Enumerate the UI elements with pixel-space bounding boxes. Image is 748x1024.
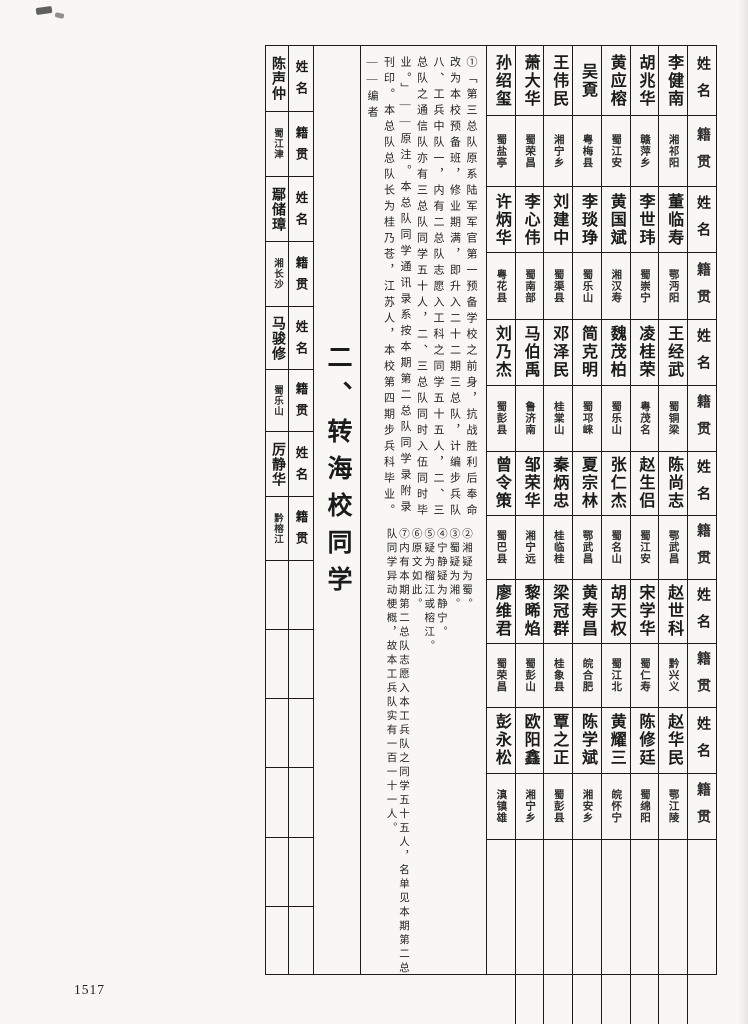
- roster-cell: 欧阳骏粤顺德: [543, 840, 572, 1024]
- roster-cell: 王经武蜀铜梁: [658, 320, 687, 451]
- roster-cell: 李琰琤蜀乐山: [572, 187, 601, 319]
- student-name: 黎晞焰: [516, 580, 544, 644]
- student-name: 黎品鑫: [631, 840, 659, 1024]
- roster-cell: 李健南湘祁阳: [658, 46, 687, 186]
- student-name: 陈声仲: [267, 56, 287, 101]
- student-name: 廖维君: [487, 580, 515, 644]
- student-name: 邹荣华: [516, 452, 544, 516]
- roster-cell: 曾令策蜀巴县: [487, 452, 515, 579]
- native-place: 蜀江安: [602, 116, 630, 186]
- scan-artifact: [55, 12, 65, 19]
- name-header-label: 姓名: [292, 440, 311, 489]
- student-name: 袁纯一: [573, 840, 601, 1024]
- student-name: 王伟民: [544, 46, 572, 116]
- student-name: 李心伟: [516, 187, 544, 253]
- empty-cell: [266, 906, 288, 974]
- origin-header-cell: 籍贯: [289, 241, 313, 306]
- empty-cell: [289, 837, 313, 906]
- scan-artifact: [36, 6, 53, 15]
- student-name: 唐昌诚: [516, 840, 544, 1024]
- native-place: 桂临桂: [544, 516, 572, 580]
- student-name: 许炳华: [487, 187, 515, 253]
- native-place: 皖怀宁: [602, 774, 630, 840]
- student-name: 张仁杰: [602, 452, 630, 516]
- native-place: 皖合肥: [573, 644, 601, 708]
- roster-cell: 陈学斌湘安乡: [572, 708, 601, 839]
- origin-header-label: 籍贯: [292, 250, 311, 299]
- roster-cell: 欧阳鑫湘宁乡: [515, 708, 544, 839]
- roster-cell: 李心伟蜀南部: [515, 187, 544, 319]
- student-name: 宋学华: [631, 580, 659, 644]
- student-name: 梁冠群: [544, 580, 572, 644]
- name-header-cell: 姓名: [289, 306, 313, 369]
- native-place-cell: 湘长沙: [266, 241, 288, 306]
- roster-cell: 刘乃杰蜀彭县: [487, 320, 515, 451]
- student-name: 陈修廷: [631, 708, 659, 774]
- name-header-cell: 姓名: [289, 46, 313, 111]
- name-header-label: 姓名: [292, 54, 311, 103]
- note-list: ②湘疑为蜀。 ③蜀疑为湘。 ④宁静疑为静宁。 ⑤疑为榴江或榕江。 ⑥原文如此。 …: [384, 528, 472, 976]
- student-name: 邓泽民: [544, 320, 572, 386]
- student-name: 王经武: [659, 320, 687, 386]
- roster-cell: 黄寿昌皖合肥: [572, 580, 601, 707]
- native-place: 蜀江北: [602, 644, 630, 708]
- student-name: 厉静华: [267, 442, 287, 487]
- roster-cell: 李世玮蜀崇宁: [630, 187, 659, 319]
- student-name: 陈学斌: [573, 708, 601, 774]
- student-name: 夏宗林: [573, 452, 601, 516]
- row-header-cell: 姓名籍贯: [687, 320, 716, 451]
- row-header-cell: 姓名籍贯: [687, 840, 716, 1024]
- native-place: 蜀江安: [631, 516, 659, 580]
- roster-cell: 黄耀三皖怀宁: [601, 708, 630, 839]
- name-header-cell: 姓名: [289, 176, 313, 241]
- native-place: 鄂江陵: [659, 774, 687, 840]
- native-place: 蜀彭县: [544, 774, 572, 840]
- student-name-cell: 马骏修: [266, 306, 288, 369]
- roster-cell: 马伯禹鲁济南: [515, 320, 544, 451]
- native-place: 蜀崇宁: [631, 253, 659, 319]
- student-name: 秦炳忠: [544, 452, 572, 516]
- roster-cell: 覃之正蜀彭县: [543, 708, 572, 839]
- origin-header-cell: 籍贯: [289, 111, 313, 176]
- native-place: 鄂武昌: [659, 516, 687, 580]
- student-name: 陈尚志: [659, 452, 687, 516]
- empty-cell: [289, 767, 313, 837]
- student-name: 马骏修: [267, 316, 287, 361]
- student-name: 赵华民: [659, 708, 687, 774]
- roster-cell: 董临寿鄂沔阳: [658, 187, 687, 319]
- origin-header-label: 籍贯: [292, 504, 311, 553]
- student-name: 魏茂柏: [602, 320, 630, 386]
- roster-cell: 胡兆华赣萍乡: [630, 46, 659, 186]
- student-name: 韩卧云: [602, 840, 630, 1024]
- table-row: 许炳华粤花县 李心伟蜀南部 刘建中蜀渠县 李琰琤蜀乐山 黄国斌湘汉寿 李世玮蜀崇…: [487, 186, 716, 319]
- name-header-cell: 姓名: [289, 431, 313, 496]
- student-name: 彭永松: [487, 708, 515, 774]
- roster-cell: 赵华民鄂江陵: [658, 708, 687, 839]
- table-row: 彭永松滇镇雄 欧阳鑫湘宁乡 覃之正蜀彭县 陈学斌湘安乡 黄耀三皖怀宁 陈修廷蜀绵…: [487, 707, 716, 839]
- native-place: 蜀铜梁: [659, 386, 687, 452]
- student-name: 凌桂荣: [631, 320, 659, 386]
- roster-cell: 陈尚志鄂武昌: [658, 452, 687, 579]
- empty-cell: [266, 837, 288, 906]
- roster-cell: 梁冠群桂象县: [543, 580, 572, 707]
- native-place: 蜀彭山: [516, 644, 544, 708]
- native-place: 湘宁乡: [516, 774, 544, 840]
- table-row: 唐昌诚蜀安岳 欧阳骏粤顺德 袁纯一鄂公安 韩卧云蜀宜宾 黎品鑫康天全 侯哲冀宝坻…: [487, 839, 716, 1024]
- native-place: 蜀邛崃: [573, 386, 601, 452]
- page-edge-shadow: [738, 0, 748, 1024]
- empty-cell: [266, 698, 288, 767]
- roster-cell: 黄国斌湘汉寿: [601, 187, 630, 319]
- native-place-cell: 蜀乐山: [266, 369, 288, 431]
- native-place-cell: 蜀江津: [266, 111, 288, 176]
- name-header-label: 姓名: [688, 46, 716, 116]
- roster-cell: 赵世科黔兴义: [658, 580, 687, 707]
- roster-cell: 胡天权蜀江北: [601, 580, 630, 707]
- student-name: 黄应榕: [602, 46, 630, 116]
- roster-table: 陈声仲 蜀江津 鄢储璋 湘长沙 马骏修 蜀乐山 厉静华 黔榕江 姓名 籍贯 姓名…: [265, 45, 717, 975]
- native-place: 黔兴义: [659, 644, 687, 708]
- empty-roster-cell: [487, 840, 515, 1024]
- roster-cell: 廖维君蜀荣昌: [487, 580, 515, 707]
- name-header-label: 姓名: [688, 187, 716, 253]
- origin-header-label: 籍贯: [292, 120, 311, 169]
- row-header-cell: 姓名籍贯: [687, 46, 716, 186]
- empty-cell: [289, 698, 313, 767]
- origin-header-label: 籍贯: [688, 644, 716, 708]
- student-name: 欧阳骏: [544, 840, 572, 1024]
- roster-cell: 黄应榕蜀江安: [601, 46, 630, 186]
- roster-cell: 刘建中蜀渠县: [543, 187, 572, 319]
- row-header-cell: 姓名籍贯: [687, 580, 716, 707]
- row-header-cell: 姓名籍贯: [687, 187, 716, 319]
- native-place: 蜀乐山: [270, 385, 284, 417]
- native-place: 蜀巴县: [487, 516, 515, 580]
- row-header-cell: 姓名籍贯: [687, 708, 716, 839]
- origin-header-label: 籍贯: [688, 386, 716, 452]
- student-name: 刘建中: [544, 187, 572, 253]
- empty-cell: [289, 906, 313, 974]
- student-name: 李琰琤: [573, 187, 601, 253]
- roster-cell: 袁纯一鄂公安: [572, 840, 601, 1024]
- roster-cell: 秦炳忠桂临桂: [543, 452, 572, 579]
- table-row: 刘乃杰蜀彭县 马伯禹鲁济南 邓泽民桂棠山 简克明蜀邛崃 魏茂柏蜀乐山 凌桂荣粤茂…: [487, 319, 716, 451]
- student-name: 马伯禹: [516, 320, 544, 386]
- name-header-label: 姓名: [292, 314, 311, 363]
- left-headers-column: 姓名 籍贯 姓名 籍贯 姓名 籍贯 姓名 籍贯: [289, 46, 314, 974]
- origin-header-label: 籍贯: [292, 376, 311, 425]
- row-header-cell: 姓名籍贯: [687, 452, 716, 579]
- student-name: 萧大华: [516, 46, 544, 116]
- native-place: 蜀乐山: [573, 253, 601, 319]
- student-name: 黄国斌: [602, 187, 630, 253]
- name-header-label: 姓名: [688, 320, 716, 386]
- origin-header-cell: 籍贯: [289, 369, 313, 431]
- native-place: 湘祁阳: [659, 116, 687, 186]
- roster-cell: 唐昌诚蜀安岳: [515, 840, 544, 1024]
- origin-header-cell: 籍贯: [289, 496, 313, 560]
- origin-header-label: 籍贯: [688, 774, 716, 840]
- roster-cell: 侯哲冀宝坻: [658, 840, 687, 1024]
- student-name: 欧阳鑫: [516, 708, 544, 774]
- roster-cell: 萧大华蜀荣昌: [515, 46, 544, 186]
- native-place: 蜀名山: [602, 516, 630, 580]
- native-place: 粤花县: [487, 253, 515, 319]
- native-place: 粤茂名: [631, 386, 659, 452]
- student-name: 吴覔: [573, 46, 601, 116]
- roster-cell: 夏宗林鄂武昌: [572, 452, 601, 579]
- student-name: 胡天权: [602, 580, 630, 644]
- student-name: 李健南: [659, 46, 687, 116]
- page-number: 1517: [74, 982, 105, 998]
- name-header-label: 姓名: [688, 452, 716, 516]
- roster-cell: 张仁杰蜀名山: [601, 452, 630, 579]
- empty-cell: [266, 560, 288, 629]
- roster-cell: 彭永松滇镇雄: [487, 708, 515, 839]
- roster-cell: 黎品鑫康天全: [630, 840, 659, 1024]
- section-title-column: 二、转海校同学: [314, 46, 361, 974]
- native-place: 鄂沔阳: [659, 253, 687, 319]
- roster-cell: 魏茂柏蜀乐山: [601, 320, 630, 451]
- native-place: 湘安乡: [573, 774, 601, 840]
- section-title: 二、转海校同学: [319, 344, 355, 603]
- origin-header-label: 籍贯: [688, 253, 716, 319]
- roster-grid: 孙绍玺蜀盐亭 萧大华蜀荣昌 王伟民湘宁乡 吴覔粤梅县 黄应榕蜀江安 胡兆华赣萍乡…: [487, 46, 716, 974]
- native-place: 桂棠山: [544, 386, 572, 452]
- empty-cell: [266, 767, 288, 837]
- native-place: 蜀盐亭: [487, 116, 515, 186]
- native-place: 赣萍乡: [631, 116, 659, 186]
- student-name: 侯哲: [659, 840, 687, 1024]
- origin-header-label: 籍贯: [688, 516, 716, 580]
- native-place: 蜀荣昌: [516, 116, 544, 186]
- student-name: [487, 840, 515, 1024]
- roster-cell: 王伟民湘宁乡: [543, 46, 572, 186]
- native-place: 鄂武昌: [573, 516, 601, 580]
- native-place: 湘长沙: [270, 258, 284, 290]
- native-place: 蜀仁寿: [631, 644, 659, 708]
- student-name: 简克明: [573, 320, 601, 386]
- name-header-label: 姓名: [688, 840, 716, 1024]
- native-place: 湘宁远: [516, 516, 544, 580]
- student-name: 胡兆华: [631, 46, 659, 116]
- table-row: 孙绍玺蜀盐亭 萧大华蜀荣昌 王伟民湘宁乡 吴覔粤梅县 黄应榕蜀江安 胡兆华赣萍乡…: [487, 46, 716, 186]
- student-name: 赵生侣: [631, 452, 659, 516]
- native-place: 蜀乐山: [602, 386, 630, 452]
- roster-cell: 简克明蜀邛崃: [572, 320, 601, 451]
- student-name: 覃之正: [544, 708, 572, 774]
- student-name: 黄寿昌: [573, 580, 601, 644]
- roster-cell: 陈修廷蜀绵阳: [630, 708, 659, 839]
- roster-cell: 吴覔粤梅县: [572, 46, 601, 186]
- student-name: 赵世科: [659, 580, 687, 644]
- notes-column: ①「第三总队原系陆军军官第一预备学校之前身，抗战胜利后奉命改为本校预备班，修业期…: [361, 46, 487, 974]
- empty-cell: [289, 560, 313, 629]
- note-primary: ①「第三总队原系陆军军官第一预备学校之前身，抗战胜利后奉命改为本校预备班，修业期…: [364, 56, 480, 526]
- native-place: 蜀彭县: [487, 386, 515, 452]
- native-place: 蜀荣昌: [487, 644, 515, 708]
- native-place: 蜀渠县: [544, 253, 572, 319]
- left-values-column: 陈声仲 蜀江津 鄢储璋 湘长沙 马骏修 蜀乐山 厉静华 黔榕江: [266, 46, 289, 974]
- roster-cell: 孙绍玺蜀盐亭: [487, 46, 515, 186]
- roster-cell: 许炳华粤花县: [487, 187, 515, 319]
- student-name: 董临寿: [659, 187, 687, 253]
- table-row: 曾令策蜀巴县 邹荣华湘宁远 秦炳忠桂临桂 夏宗林鄂武昌 张仁杰蜀名山 赵生侣蜀江…: [487, 451, 716, 579]
- roster-cell: 韩卧云蜀宜宾: [601, 840, 630, 1024]
- empty-cell: [266, 629, 288, 698]
- origin-header-label: 籍贯: [688, 116, 716, 186]
- native-place: 蜀江津: [270, 128, 284, 160]
- table-row: 廖维君蜀荣昌 黎晞焰蜀彭山 梁冠群桂象县 黄寿昌皖合肥 胡天权蜀江北 宋学华蜀仁…: [487, 579, 716, 707]
- student-name: 黄耀三: [602, 708, 630, 774]
- roster-cell: 赵生侣蜀江安: [630, 452, 659, 579]
- native-place: 黔榕江: [270, 513, 284, 545]
- native-place-cell: 黔榕江: [266, 496, 288, 560]
- native-place: 粤梅县: [573, 116, 601, 186]
- student-name: 李世玮: [631, 187, 659, 253]
- native-place: 湘汉寿: [602, 253, 630, 319]
- student-name-cell: 厉静华: [266, 431, 288, 496]
- student-name-cell: 陈声仲: [266, 46, 288, 111]
- native-place: 鲁济南: [516, 386, 544, 452]
- scanned-roster-page: 1517 陈声仲 蜀江津 鄢储璋 湘长沙 马骏修 蜀乐山 厉静华 黔榕江 姓名 …: [0, 0, 748, 1024]
- roster-cell: 宋学华蜀仁寿: [630, 580, 659, 707]
- native-place: 蜀南部: [516, 253, 544, 319]
- native-place: 蜀绵阳: [631, 774, 659, 840]
- name-header-label: 姓名: [292, 185, 311, 234]
- student-name: 孙绍玺: [487, 46, 515, 116]
- empty-cell: [289, 629, 313, 698]
- student-name: 鄢储璋: [267, 187, 287, 232]
- student-name: 曾令策: [487, 452, 515, 516]
- student-name: 刘乃杰: [487, 320, 515, 386]
- name-header-label: 姓名: [688, 580, 716, 644]
- native-place: 滇镇雄: [487, 774, 515, 840]
- name-header-label: 姓名: [688, 708, 716, 774]
- roster-cell: 邹荣华湘宁远: [515, 452, 544, 579]
- roster-cell: 黎晞焰蜀彭山: [515, 580, 544, 707]
- native-place: 桂象县: [544, 644, 572, 708]
- roster-cell: 邓泽民桂棠山: [543, 320, 572, 451]
- roster-cell: 凌桂荣粤茂名: [630, 320, 659, 451]
- student-name-cell: 鄢储璋: [266, 176, 288, 241]
- native-place: 湘宁乡: [544, 116, 572, 186]
